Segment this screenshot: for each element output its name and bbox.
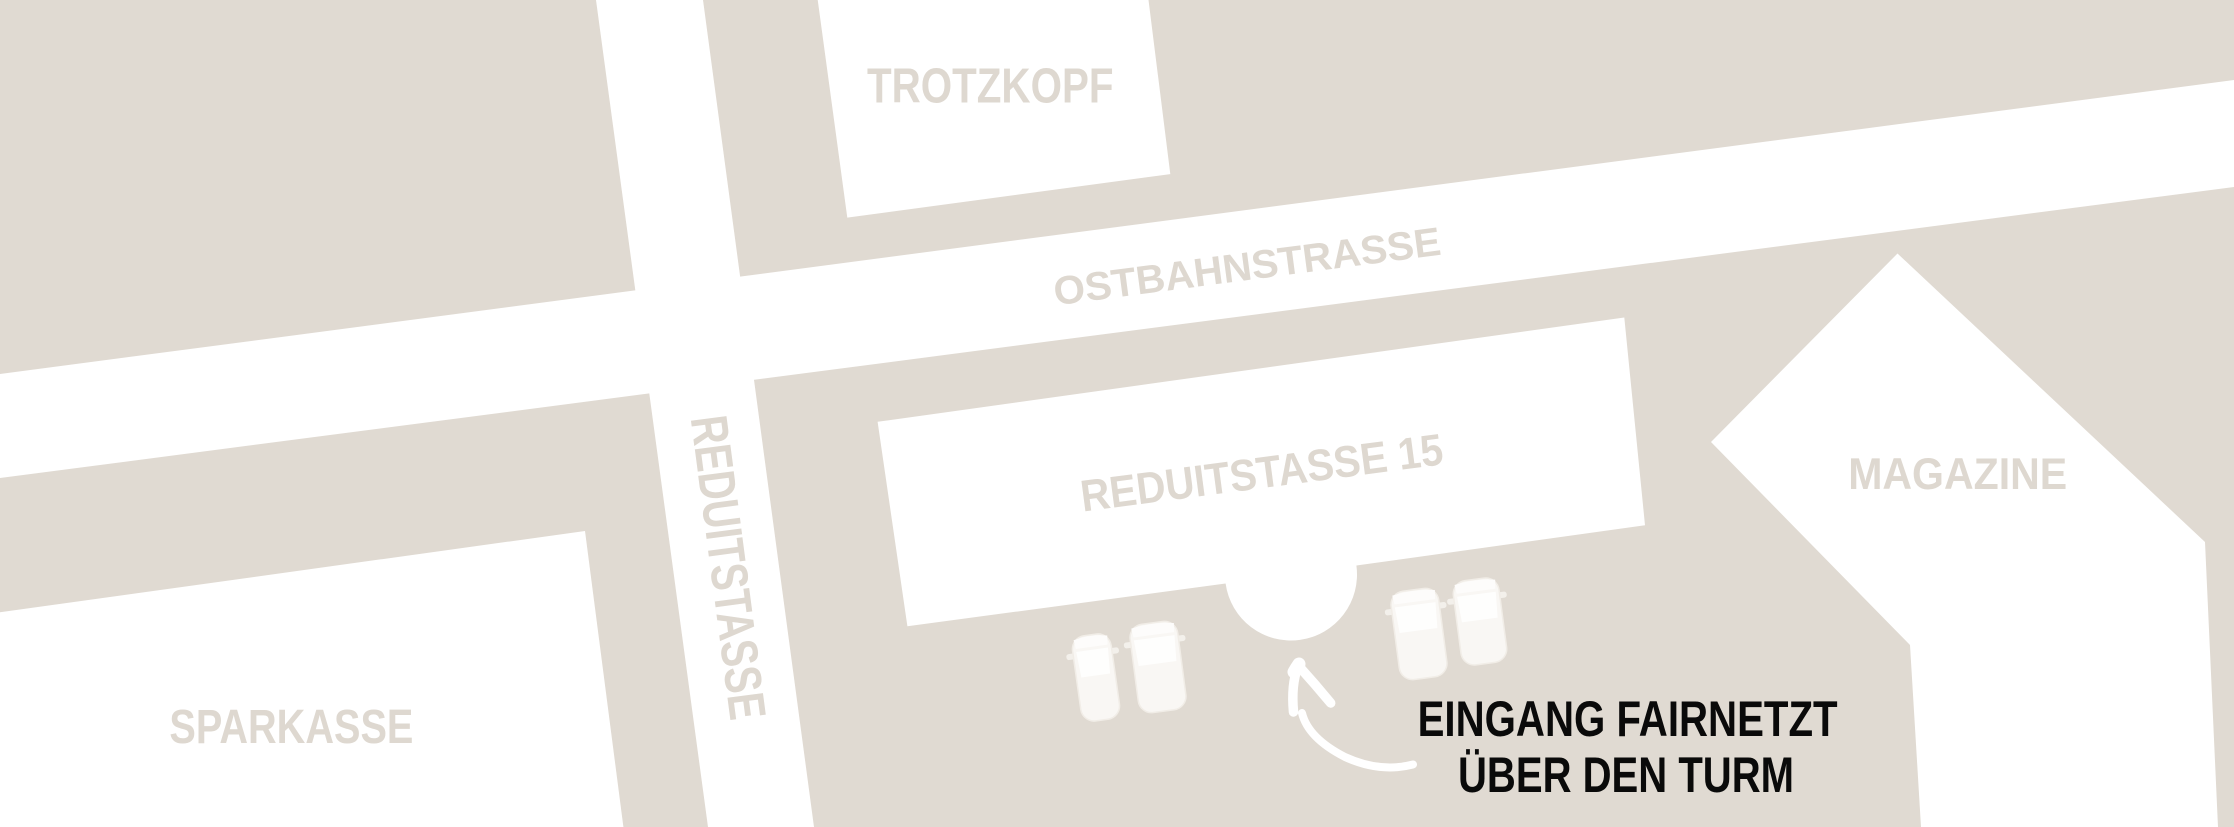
svg-text:MAGAZINE: MAGAZINE (1848, 450, 2067, 499)
svg-text:TROTZKOPF: TROTZKOPF (867, 58, 1114, 113)
svg-text:EINGANG FAIRNETZT: EINGANG FAIRNETZT (1418, 691, 1838, 747)
svg-text:ÜBER DEN TURM: ÜBER DEN TURM (1458, 747, 1794, 803)
svg-text:SPARKASSE: SPARKASSE (169, 700, 413, 754)
